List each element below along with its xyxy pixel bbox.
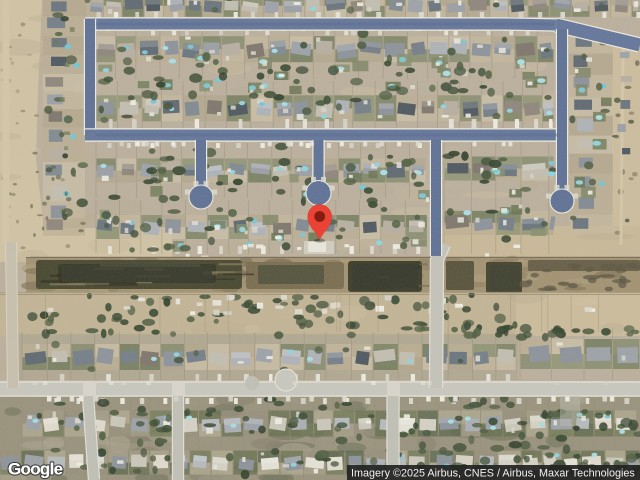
svg-text:Imagery ©2025 Airbus, CNES / A: Imagery ©2025 Airbus, CNES / Airbus, Max…	[351, 467, 635, 479]
svg-text:Google: Google	[8, 460, 63, 479]
